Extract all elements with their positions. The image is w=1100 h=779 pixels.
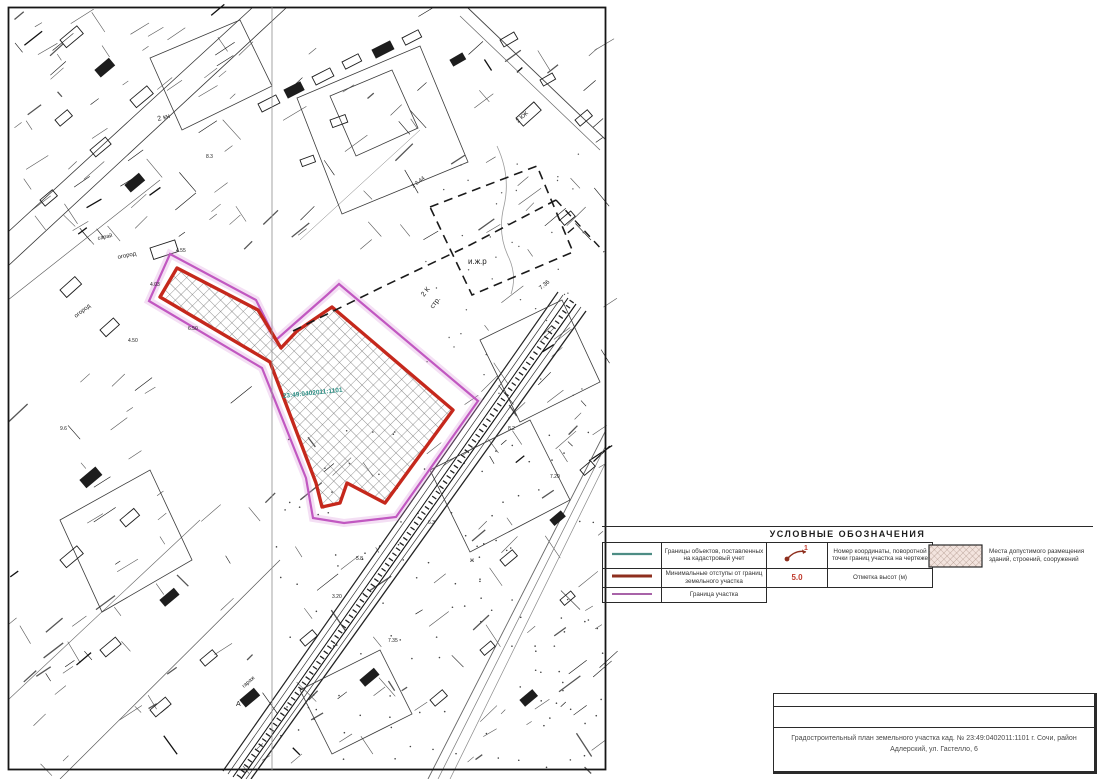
legend-label: Номер координаты, поворотной точки грани… — [828, 543, 933, 569]
svg-text:7.20: 7.20 — [550, 474, 560, 480]
svg-text:3.20: 3.20 — [332, 594, 342, 600]
svg-text:стр.: стр. — [429, 296, 442, 310]
svg-text:6.3: 6.3 — [428, 520, 435, 526]
svg-text:огород: огород — [117, 251, 137, 261]
elevation-sample: 5.0 — [791, 573, 802, 582]
svg-text:7.36: 7.36 — [538, 279, 551, 292]
svg-text:9.6: 9.6 — [60, 426, 67, 432]
svg-text:гараж: гараж — [241, 675, 256, 690]
svg-text:2 кн: 2 кн — [157, 113, 171, 123]
svg-text:1: 1 — [804, 545, 808, 552]
legend-label: Отметка высот (м) — [828, 568, 933, 587]
svg-text:сарай: сарай — [97, 232, 113, 242]
legend-table: Границы объектов, поставленных на кадаст… — [602, 542, 933, 603]
svg-text:ж: ж — [470, 558, 474, 564]
topographic-map: 2 кн8.3сарайогородогород4.034.554.506.50… — [0, 0, 1100, 779]
legend-label: Места допустимого размещения зданий, стр… — [989, 548, 1093, 564]
legend-label: Граница участка — [662, 587, 767, 603]
dashed-boundary-line-2 — [556, 200, 604, 252]
svg-text:4.03: 4.03 — [150, 282, 160, 288]
stream-line — [497, 146, 514, 294]
svg-text:2 К: 2 К — [420, 285, 432, 298]
document-title-line2: Адлерский, ул. Гастелло, 6 — [778, 745, 1090, 756]
document-title-line1: Градостроительный план земельного участк… — [778, 734, 1090, 745]
svg-text:1 2.44: 1 2.44 — [411, 175, 427, 189]
svg-text:7.35: 7.35 — [388, 638, 398, 644]
turn-point-number-icon: 1 — [780, 544, 814, 564]
title-block-rule-2 — [774, 727, 1094, 728]
legend-row-cadastre-boundary: Границы объектов, поставленных на кадаст… — [603, 543, 933, 569]
min-setback-line-swatch — [609, 571, 655, 581]
title-block: Градостроительный план земельного участк… — [773, 693, 1097, 774]
svg-text:6.50: 6.50 — [188, 326, 198, 332]
svg-text:4.50: 4.50 — [128, 338, 138, 344]
legend-title: УСЛОВНЫЕ ОБОЗНАЧЕНИЯ — [602, 529, 1093, 539]
legend-hatch-item: Места допустимого размещения зданий, стр… — [928, 543, 1093, 569]
legend-label: Минимальные отступы от границ земельного… — [662, 568, 767, 587]
svg-text:и.ж.р: и.ж.р — [468, 257, 487, 266]
svg-text:А: А — [236, 701, 241, 708]
legend-label: Границы объектов, поставленных на кадаст… — [662, 543, 767, 569]
buildable-area-swatch — [928, 543, 984, 569]
title-block-rule-1 — [774, 706, 1094, 707]
svg-text:8.3: 8.3 — [206, 154, 213, 160]
parcel-boundary-line-swatch — [609, 589, 655, 599]
svg-text:огород: огород — [74, 303, 93, 320]
legend-top-rule — [602, 526, 1093, 527]
svg-text:8.2: 8.2 — [508, 426, 515, 432]
svg-text:5.8: 5.8 — [356, 556, 363, 562]
cadastre-boundary-line-swatch — [609, 549, 655, 559]
plan-sheet: 2 кн8.3сарайогородогород4.034.554.506.50… — [0, 0, 1100, 779]
legend-row-min-setback: Минимальные отступы от границ земельного… — [603, 568, 933, 587]
document-title: Градостроительный план земельного участк… — [778, 734, 1090, 755]
svg-text:4.55: 4.55 — [176, 248, 186, 254]
legend-row-parcel-boundary: Граница участка — [603, 587, 933, 603]
